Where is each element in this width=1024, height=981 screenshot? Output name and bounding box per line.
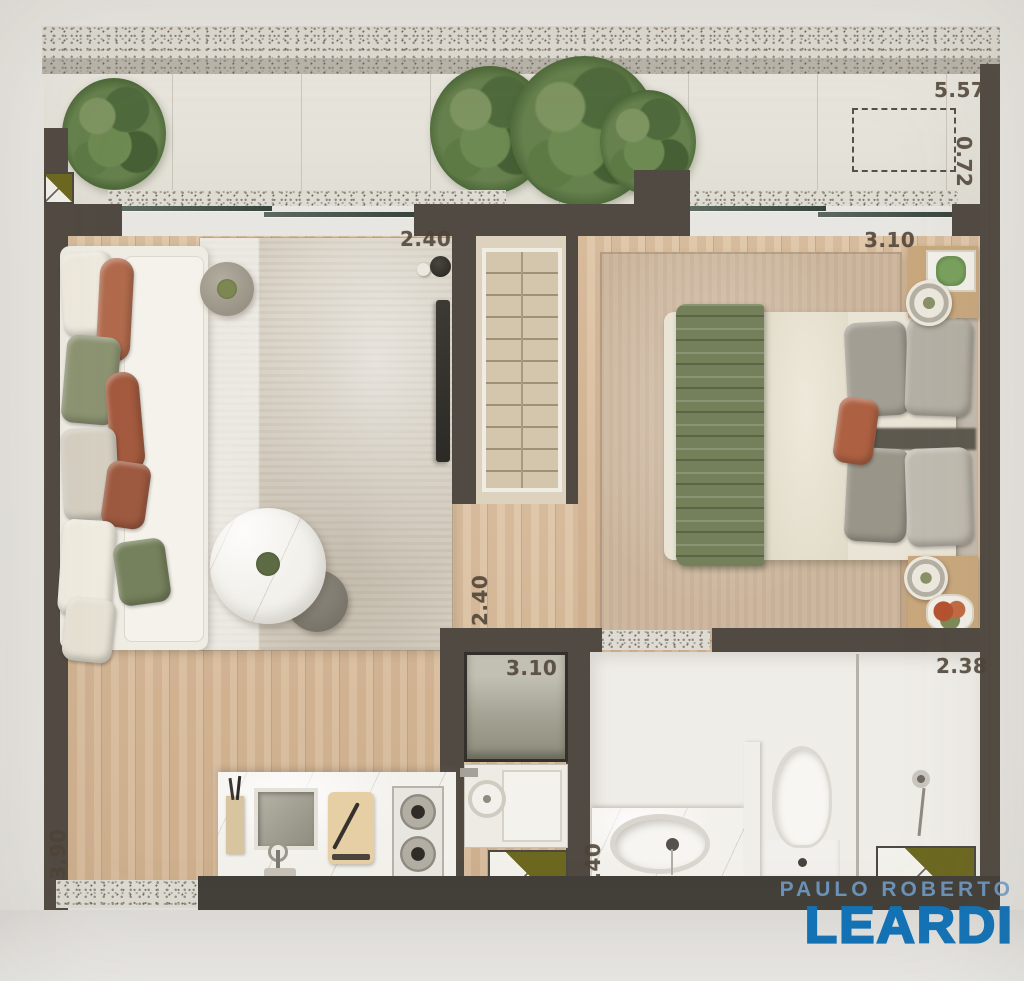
kitchen-sink (254, 788, 318, 850)
wall-top-segment (414, 204, 690, 236)
closet-rail-bar (521, 252, 523, 488)
floor-plan: 5.57 0.72 2.40 2.40 (0, 0, 1024, 981)
plant-icon (936, 256, 966, 286)
dim-bedroom-width: 3.10 (864, 230, 915, 250)
toilet-partition (744, 742, 760, 882)
dim-living-width: 2.40 (400, 229, 451, 249)
balcony-railing (42, 58, 1000, 74)
living-sliding-door (122, 206, 272, 211)
sofa-pillow (100, 459, 153, 530)
bathroom-sink (610, 814, 710, 874)
wall-closet-bedroom (566, 236, 578, 504)
plant-icon (217, 279, 237, 299)
wall-right (980, 64, 1000, 910)
dim-balcony-width: 5.57 (934, 80, 985, 100)
shower-head-icon (912, 770, 930, 788)
bathroom-door-threshold (600, 630, 710, 650)
flower-vase (928, 596, 972, 630)
burner-icon (400, 836, 436, 872)
tv-panel (436, 300, 450, 462)
balcony-outer-facade (42, 26, 1000, 58)
entry-threshold (56, 880, 198, 908)
bedroom-sliding-door (690, 206, 826, 211)
faucet-hose (671, 849, 673, 875)
shower-glass (856, 654, 859, 880)
plant-icon (256, 552, 280, 576)
table-lamp (906, 280, 952, 326)
brand-watermark: PAULO ROBERTO LEARDI (780, 878, 1014, 952)
burner-icon (400, 794, 436, 830)
table-lamp (904, 556, 948, 600)
decor-dot (417, 263, 430, 276)
bedroom-balcony-sill (686, 190, 958, 206)
board-groove (332, 854, 370, 860)
ac-condenser-outline (852, 108, 956, 172)
dim-laundry-width: 3.10 (506, 658, 557, 678)
plant-icon (62, 78, 166, 190)
column-shaft-box (44, 172, 74, 204)
bed-pillow (904, 447, 973, 547)
dim-kitchen-length: 3.90 (48, 814, 68, 880)
drain-dot (483, 795, 491, 803)
wall-speaker (430, 256, 451, 277)
dim-hall-length: 2.40 (470, 560, 490, 626)
toilet-bowl (772, 746, 832, 848)
wall-top-notch (634, 170, 690, 206)
wall-bathroom-top (712, 628, 980, 652)
sofa-pillow (112, 537, 172, 608)
bed-blanket (676, 304, 764, 566)
brand-line2: LEARDI (780, 902, 1014, 950)
living-sliding-door (264, 212, 414, 217)
dim-balcony-depth: 0.72 (954, 136, 974, 196)
faucet-icon (460, 768, 478, 777)
sofa-pillow (61, 596, 117, 665)
wall-stub (590, 628, 602, 652)
knife-block (226, 796, 244, 854)
wall-top-segment (44, 204, 122, 236)
bed-pillow (904, 317, 973, 417)
wall-laundry-top (440, 628, 590, 652)
bedroom-sliding-door (818, 212, 956, 217)
wall-living-closet (452, 236, 476, 504)
dim-bathroom-width: 2.38 (936, 656, 987, 676)
toilet-button (798, 858, 807, 867)
laundry-tank (502, 770, 562, 842)
